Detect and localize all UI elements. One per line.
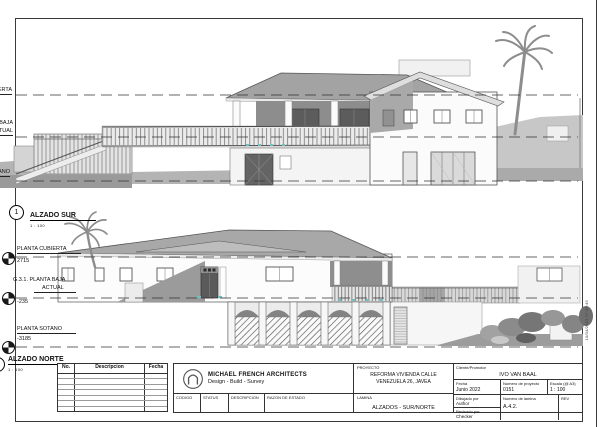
fecha-value: Junio 2022	[456, 387, 498, 393]
project-section: PROYECTO REFORMA VIVIENDA CALLE VENEZUEL…	[354, 364, 454, 412]
revision-col-no: No.	[58, 364, 75, 373]
level-value-cubierta-north: 2715	[17, 258, 29, 264]
datum-symbol-cubierta	[2, 252, 15, 265]
level-label-baja-actual-north: ACTUAL	[34, 285, 76, 293]
view-scale-south: 1 : 100	[30, 223, 96, 228]
dibujado-value: Author	[456, 401, 498, 406]
gate	[125, 283, 143, 302]
plot-timestamp: 10/04/2023 17:35:45	[585, 300, 589, 341]
garden-fence	[390, 287, 520, 303]
neighbor-wall	[518, 266, 580, 303]
entry-door	[201, 267, 226, 298]
datum-symbol-baja	[2, 292, 15, 305]
escala-label: Escala (@ A3)	[550, 381, 576, 386]
lamina-label: LAMINA	[357, 395, 372, 400]
level-label-baja-actual-south: ACTUAL	[0, 128, 13, 136]
revision-col-fecha: Fecha	[145, 364, 167, 373]
level-label-baja-south: PLANTA BAJA	[0, 120, 13, 126]
level-label-cubierta-north: PLANTA CUBIERTA	[17, 246, 81, 254]
status-col-codigo: CODIGO	[174, 394, 201, 412]
arcade	[228, 302, 390, 345]
numero-lamina-label: Numero de lamina	[503, 396, 536, 401]
south-elevation-drawing	[0, 18, 600, 210]
upper-windows	[404, 110, 482, 123]
status-col-status: STATUS	[201, 394, 229, 412]
cliente-label: Cliente/Promotor	[456, 365, 486, 370]
revision-table: No. Descripcion Fecha	[57, 363, 168, 412]
proyecto-value: REFORMA VIVIENDA CALLE VENEZUELA 26, JAV…	[357, 372, 450, 385]
north-elevation-drawing	[0, 210, 600, 362]
numero-proyecto-label: Numero de proyecto	[503, 381, 539, 386]
escala-value: 1 : 100	[550, 387, 580, 393]
drawing-sheet: PLANTA CUBIERTA PLANTA BAJA ACTUAL PLANT…	[0, 0, 600, 427]
arcade-hatch-panels	[235, 317, 383, 345]
revision-table-header: No. Descripcion Fecha	[58, 364, 167, 374]
cliente-value: IVO VAN BAAL	[456, 372, 580, 378]
level-label-sotano-north: PLANTA SOTANO	[17, 326, 76, 334]
status-row: CODIGO STATUS DESCRIPCION RAZON DE ESTAD…	[174, 394, 353, 412]
revision-col-descripcion: Descripcion	[75, 364, 145, 373]
level-label-baja-north: G.3.1. PLANTA BAJA	[13, 277, 65, 283]
louver-panel	[394, 307, 407, 344]
revision-row	[58, 407, 167, 411]
view-title-south-text: ALZADO SUR	[30, 212, 96, 221]
architect-name: MICHAEL FRENCH ARCHITECTS	[208, 372, 307, 378]
terrace-railing	[102, 126, 408, 147]
lamina-value: ALZADOS - SUR/NORTE	[357, 405, 450, 411]
architect-section: MICHAEL FRENCH ARCHITECTS Design - Build…	[174, 364, 354, 412]
fecha-label: Fecha	[456, 381, 467, 386]
status-col-razon: RAZON DE ESTADO	[265, 394, 353, 412]
proyecto-label: PROYECTO	[357, 365, 379, 370]
numero-proyecto-value: 0151	[503, 387, 545, 393]
info-section: Cliente/Promotor IVO VAN BAAL Fecha Juni…	[454, 364, 582, 412]
title-block: MICHAEL FRENCH ARCHITECTS Design - Build…	[173, 363, 583, 413]
status-col-descripcion: DESCRIPCION	[229, 394, 265, 412]
revisado-value: Checker	[456, 414, 498, 419]
porch-north	[330, 261, 392, 302]
view-title-south: ALZADO SUR 1 : 100	[30, 204, 96, 228]
architect-logo-icon	[182, 368, 204, 390]
level-value-baja-north: -235	[17, 299, 28, 305]
roof-north	[58, 230, 392, 261]
level-value-sotano-north: -3185	[17, 336, 31, 342]
rev-label: REV	[561, 396, 569, 401]
level-label-cubierta-south: PLANTA CUBIERTA	[0, 87, 12, 95]
level-label-sotano-south: PLANTA SOTANO	[0, 169, 10, 177]
view-number-badge: 1	[9, 205, 24, 220]
architect-tagline: Design - Build - Survey	[208, 379, 307, 385]
numero-lamina-value: A.4.2.	[503, 404, 556, 410]
